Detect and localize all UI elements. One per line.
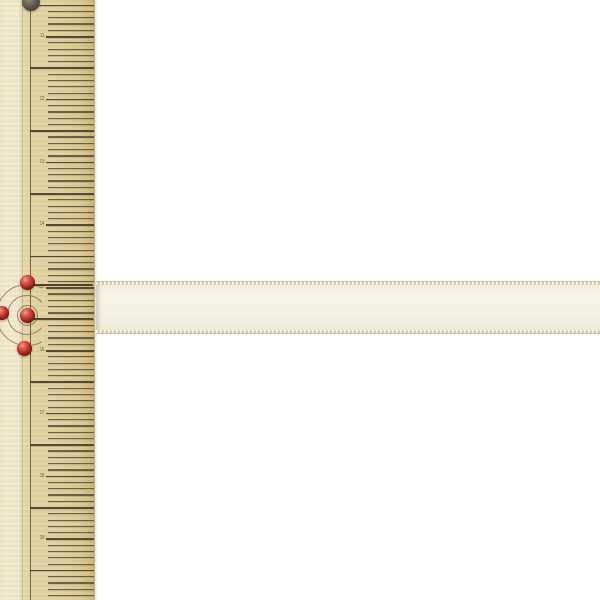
ruler-tick-number: 13 (32, 159, 44, 165)
ruler-major-tick (30, 67, 94, 69)
ruler-minor-tick (48, 49, 94, 50)
ruler-minor-tick (48, 206, 94, 207)
ruler-minor-tick (48, 388, 94, 389)
ruler-minor-tick (48, 30, 94, 31)
ruler-minor-tick (48, 520, 94, 521)
ruler-minor-tick (48, 325, 94, 326)
ruler-tick-number: 18 (32, 473, 44, 479)
ruler-tick-number: 19 (32, 535, 44, 541)
ruler-minor-tick (48, 494, 94, 495)
ruler-minor-tick (48, 425, 94, 426)
ruler-minor-tick (48, 118, 94, 119)
ruler-minor-tick (48, 450, 94, 451)
ruler-minor-tick (48, 23, 94, 24)
ruler-tick-number: 17 (32, 410, 44, 416)
ruler-minor-tick (48, 55, 94, 56)
ruler-minor-tick (48, 463, 94, 464)
ruler-minor-tick (48, 589, 94, 590)
ruler-minor-tick (48, 432, 94, 433)
ruler-minor-tick (48, 564, 94, 565)
red-glass-head-pin (20, 275, 35, 290)
ruler-major-tick: 17 (46, 413, 94, 415)
ruler-minor-tick (48, 275, 94, 276)
ruler-minor-tick (48, 331, 94, 332)
ruler-major-tick: 16 (46, 350, 94, 352)
ruler-minor-tick (48, 61, 94, 62)
ruler-minor-tick (48, 438, 94, 439)
ruler-minor-tick (48, 136, 94, 137)
ruler-minor-tick (48, 199, 94, 200)
red-glass-head-pin (17, 341, 32, 356)
ruler-minor-tick (48, 595, 94, 596)
ruler-minor-tick (48, 218, 94, 219)
ruler-minor-tick (48, 268, 94, 269)
ruler-tick-number: 12 (32, 96, 44, 102)
ruler-minor-tick (48, 488, 94, 489)
ruler-minor-tick (48, 111, 94, 112)
ribbon-picot-edge-top (96, 281, 600, 285)
ruler-major-tick (30, 256, 94, 258)
ruler-major-tick: 13 (46, 162, 94, 164)
ruler-minor-tick (48, 375, 94, 376)
ruler-minor-tick (48, 545, 94, 546)
pin-needle (32, 284, 93, 286)
ruler-minor-tick (48, 557, 94, 558)
ruler-major-tick: 18 (46, 476, 94, 478)
ruler-minor-tick (48, 262, 94, 263)
ruler-minor-tick (48, 513, 94, 514)
ruler-minor-tick (48, 237, 94, 238)
ruler-minor-tick (48, 80, 94, 81)
ruler-minor-tick (48, 407, 94, 408)
ruler-minor-tick (48, 17, 94, 18)
ruler-minor-tick (48, 105, 94, 106)
ruler-minor-tick (48, 363, 94, 364)
ruler-minor-tick (48, 74, 94, 75)
ruler-minor-tick (48, 400, 94, 401)
ruler-minor-tick (48, 300, 94, 301)
ruler-minor-tick (48, 243, 94, 244)
ruler-major-tick (30, 5, 94, 7)
red-glass-head-pin (20, 308, 35, 323)
ruler-major-tick (30, 444, 94, 446)
ribbon-picot-edge-bottom (96, 330, 600, 334)
ruler-minor-tick (48, 11, 94, 12)
ruler-minor-tick (48, 281, 94, 282)
ruler-minor-tick (48, 369, 94, 370)
ruler-tick-number: 14 (32, 221, 44, 227)
ruler-minor-tick (48, 187, 94, 188)
ruler-major-tick: 11 (46, 36, 94, 38)
ruler-minor-tick (48, 582, 94, 583)
pin-needle (32, 318, 93, 320)
ruler-minor-tick (48, 143, 94, 144)
ruler-major-tick (30, 507, 94, 509)
ruler-minor-tick (48, 212, 94, 213)
ruler-minor-tick (48, 469, 94, 470)
ruler-minor-tick (48, 526, 94, 527)
ruler-major-tick: 14 (46, 224, 94, 226)
ruler-minor-tick (48, 250, 94, 251)
ruler-major-tick (30, 381, 94, 383)
ruler-major-tick: 12 (46, 99, 94, 101)
ruler-minor-tick (48, 231, 94, 232)
ruler-minor-tick (48, 482, 94, 483)
ruler-minor-tick (48, 394, 94, 395)
ruler-minor-tick (48, 312, 94, 313)
ruler-minor-tick (48, 155, 94, 156)
ruler-major-tick (30, 570, 94, 572)
ruler-minor-tick (48, 306, 94, 307)
ruler-minor-tick (48, 124, 94, 125)
ruler-minor-tick (48, 174, 94, 175)
ruler-minor-tick (48, 149, 94, 150)
ruler-major-tick (30, 130, 94, 132)
ruler-minor-tick (48, 551, 94, 552)
ivory-satin-ribbon (96, 281, 600, 334)
ruler-major-tick: 19 (46, 538, 94, 540)
product-photo: 111213141516171819 (0, 0, 600, 600)
ruler-minor-tick (48, 86, 94, 87)
ruler-minor-tick (48, 356, 94, 357)
ruler-minor-tick (48, 180, 94, 181)
ruler-minor-tick (48, 293, 94, 294)
ruler-minor-tick (48, 419, 94, 420)
ruler-minor-tick (48, 532, 94, 533)
ruler-major-tick: 15 (46, 287, 94, 289)
ruler-minor-tick (48, 93, 94, 94)
ruler-tick-number: 11 (32, 33, 44, 39)
ruler-minor-tick (48, 576, 94, 577)
ruler-minor-tick (48, 168, 94, 169)
ruler-major-tick (30, 193, 94, 195)
ruler-minor-tick (48, 42, 94, 43)
ruler-minor-tick (48, 457, 94, 458)
ruler-minor-tick (48, 501, 94, 502)
ruler-minor-tick (48, 344, 94, 345)
ruler-minor-tick (48, 337, 94, 338)
